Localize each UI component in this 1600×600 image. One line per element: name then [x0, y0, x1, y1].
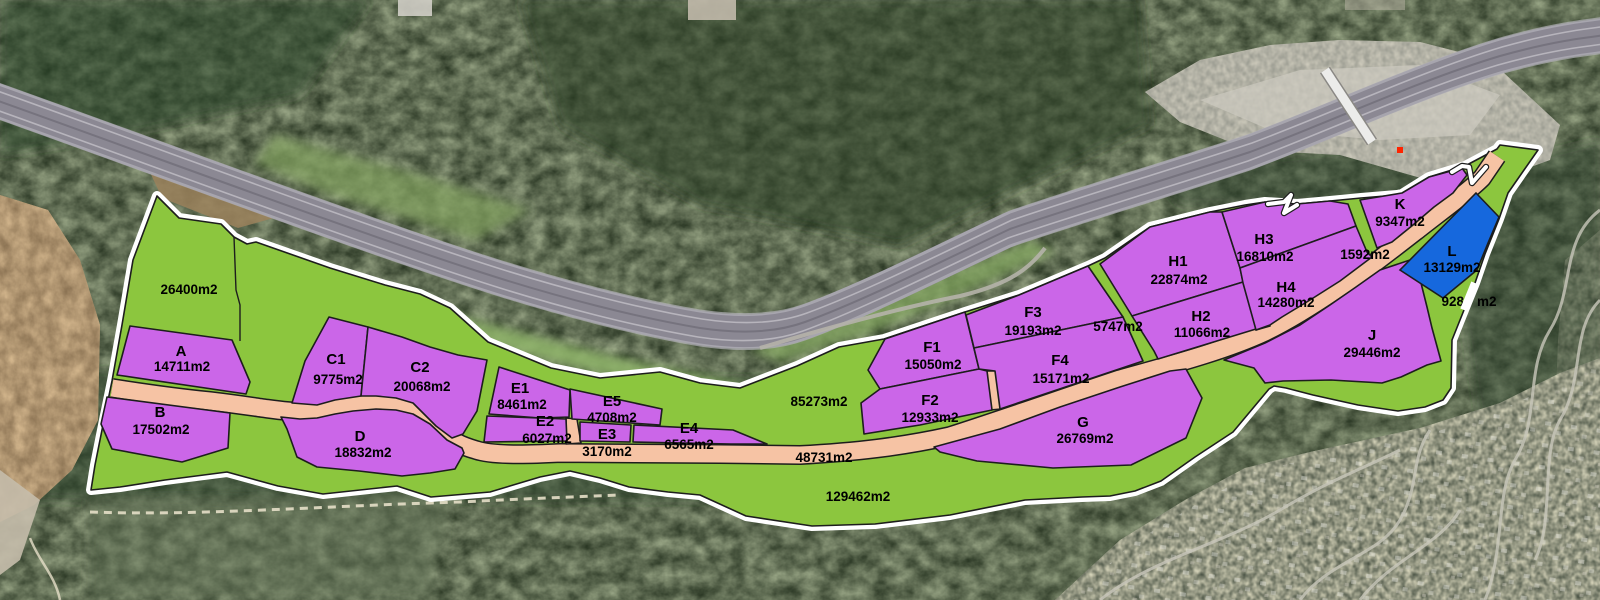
svg-text:6027m2: 6027m2: [522, 431, 572, 446]
svg-text:22874m2: 22874m2: [1150, 272, 1207, 287]
svg-text:15050m2: 15050m2: [904, 357, 961, 372]
svg-text:8461m2: 8461m2: [497, 397, 547, 412]
svg-text:11066m2: 11066m2: [1174, 325, 1230, 340]
svg-text:A: A: [176, 343, 187, 360]
svg-text:F3: F3: [1024, 304, 1042, 321]
svg-text:E2: E2: [536, 413, 554, 430]
svg-text:9775m2: 9775m2: [313, 372, 363, 387]
svg-text:14711m2: 14711m2: [154, 359, 210, 374]
svg-text:1592m2: 1592m2: [1340, 247, 1390, 262]
svg-text:48731m2: 48731m2: [795, 450, 852, 465]
svg-text:29446m2: 29446m2: [1343, 345, 1400, 360]
svg-text:B: B: [155, 404, 166, 421]
svg-text:9347m2: 9347m2: [1375, 214, 1425, 229]
svg-text:H2: H2: [1191, 308, 1210, 325]
svg-text:E3: E3: [598, 426, 616, 443]
svg-text:F2: F2: [921, 392, 939, 409]
svg-text:19193m2: 19193m2: [1004, 323, 1061, 338]
svg-text:13129m2: 13129m2: [1423, 260, 1480, 275]
svg-text:5747m2: 5747m2: [1093, 319, 1143, 334]
svg-text:12933m2: 12933m2: [901, 410, 958, 425]
svg-text:18832m2: 18832m2: [334, 445, 391, 460]
svg-text:C2: C2: [410, 359, 429, 376]
svg-text:16810m2: 16810m2: [1236, 249, 1293, 264]
svg-text:m2: m2: [1477, 294, 1497, 309]
svg-text:15171m2: 15171m2: [1032, 371, 1089, 386]
svg-text:E1: E1: [511, 380, 529, 397]
svg-text:85273m2: 85273m2: [790, 394, 847, 409]
svg-text:L: L: [1447, 243, 1456, 260]
svg-text:F4: F4: [1051, 352, 1069, 369]
svg-text:20068m2: 20068m2: [393, 379, 450, 394]
svg-text:26400m2: 26400m2: [160, 282, 217, 297]
svg-text:G: G: [1077, 414, 1089, 431]
svg-text:H4: H4: [1276, 279, 1296, 296]
svg-text:E5: E5: [603, 393, 621, 410]
svg-text:K: K: [1395, 196, 1406, 213]
svg-text:3170m2: 3170m2: [582, 444, 632, 459]
svg-text:J: J: [1368, 327, 1376, 344]
svg-text:F1: F1: [923, 339, 941, 356]
svg-text:C1: C1: [326, 351, 345, 368]
svg-text:D: D: [355, 428, 366, 445]
svg-text:H1: H1: [1168, 253, 1187, 270]
svg-text:129462m2: 129462m2: [826, 489, 891, 504]
svg-text:6565m2: 6565m2: [664, 437, 714, 452]
svg-text:14280m2: 14280m2: [1257, 295, 1314, 310]
svg-text:17502m2: 17502m2: [132, 422, 189, 437]
svg-text:E4: E4: [680, 420, 699, 437]
svg-text:H3: H3: [1254, 231, 1273, 248]
svg-text:26769m2: 26769m2: [1056, 431, 1113, 446]
svg-text:4708m2: 4708m2: [587, 410, 637, 425]
